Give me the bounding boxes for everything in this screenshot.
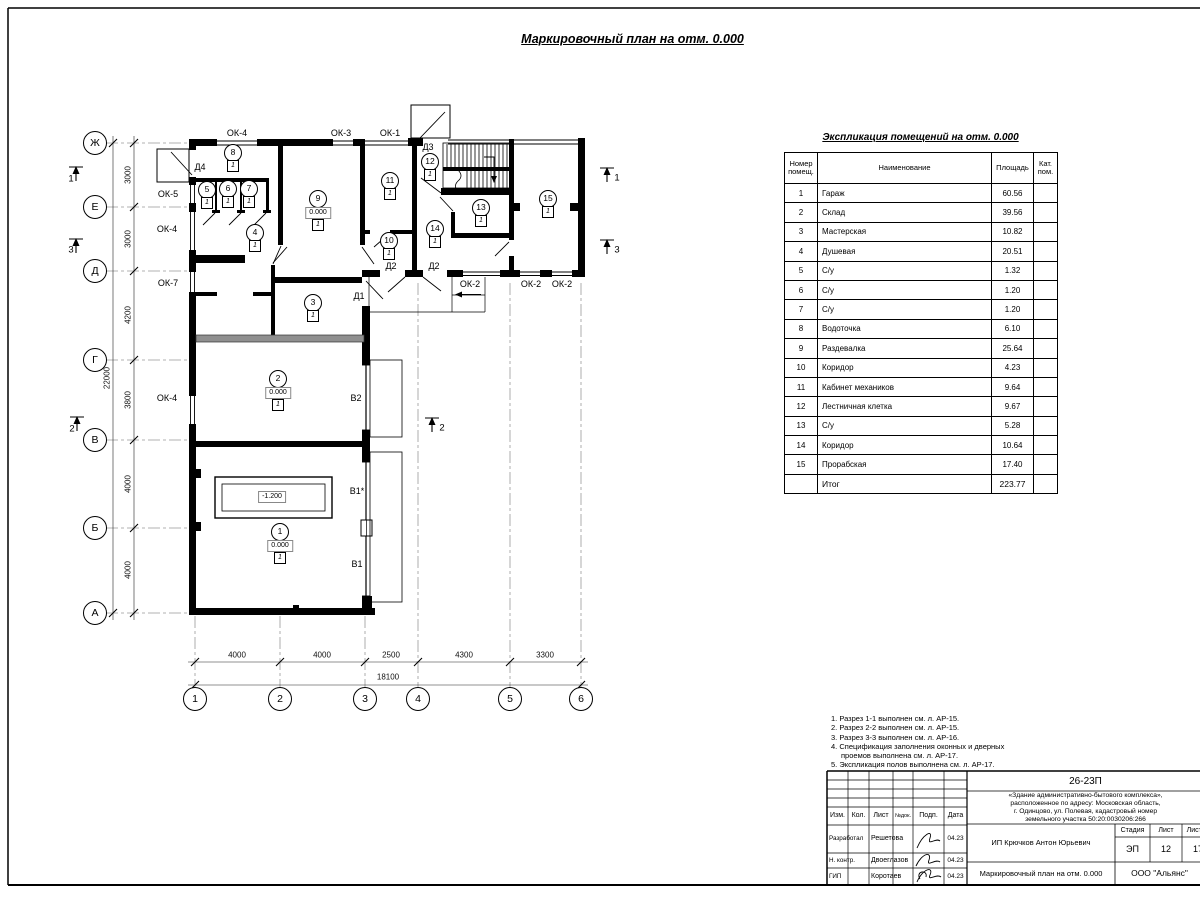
room-category: 1 <box>384 188 396 200</box>
opening-label-ОК-5: ОК-5 <box>158 189 178 199</box>
col-kol: Кол. <box>848 807 869 825</box>
cell-room-area: 10.64 <box>992 436 1034 455</box>
axis-circle-Б: Б <box>83 516 107 540</box>
cell-room-cat <box>1034 184 1058 203</box>
room-category: 1 <box>222 196 234 208</box>
cell-room-number: 3 <box>785 222 818 241</box>
company-name: ООО "Альянс" <box>1115 862 1200 885</box>
cell-room-name: Душевая <box>818 242 992 261</box>
cell-room-name: С/у <box>818 416 992 435</box>
table-row: 10Коридор4.23 <box>785 358 1058 377</box>
opening-label-Д2: Д2 <box>428 261 439 271</box>
stage-value: ЭП <box>1115 837 1150 862</box>
cell-room-number: 15 <box>785 455 818 474</box>
table-row: 8Водоточка6.10 <box>785 319 1058 338</box>
person-date: 04.23 <box>944 825 967 853</box>
cell-room-name: Мастерская <box>818 222 992 241</box>
cell-room-area: 39.56 <box>992 203 1034 222</box>
cell-room-cat <box>1034 203 1058 222</box>
room-category: 1 <box>227 160 239 172</box>
room-number-circle: 2 <box>269 370 287 388</box>
table-row: 15Прорабская17.40 <box>785 455 1058 474</box>
dim-label: 3800 <box>124 391 133 409</box>
note-line: 1. Разрез 1-1 выполнен см. л. АР-15. <box>831 714 1004 723</box>
cell-room-name: Гараж <box>818 184 992 203</box>
cell-empty <box>1034 474 1058 493</box>
room-category: 1 <box>475 215 487 227</box>
cell-room-cat <box>1034 339 1058 358</box>
person-name: Коротаев <box>871 868 912 885</box>
page-title: Маркировочный план на отм. 0.000 <box>460 32 805 46</box>
cell-room-number: 4 <box>785 242 818 261</box>
dim-label: 3300 <box>536 651 554 660</box>
sheets-value: 17 <box>1182 837 1200 862</box>
cell-room-cat <box>1034 300 1058 319</box>
axis-circle-Ж: Ж <box>83 131 107 155</box>
opening-label-ОК-2: ОК-2 <box>552 279 572 289</box>
section-number-2: 2 <box>69 424 74 435</box>
cell-room-number: 9 <box>785 339 818 358</box>
cell-room-cat <box>1034 261 1058 280</box>
col-ndok: №док. <box>893 807 913 825</box>
col-izm: Изм. <box>827 807 848 825</box>
opening-label-Д2: Д2 <box>385 261 396 271</box>
opening-label-ОК-4: ОК-4 <box>157 224 177 234</box>
cell-room-number: 14 <box>785 436 818 455</box>
pit-elevation: -1.200 <box>258 491 286 503</box>
room-category: 1 <box>249 240 261 252</box>
room-number-circle: 9 <box>309 190 327 208</box>
room-elevation: 0.000 <box>267 540 293 552</box>
dim-label: 4000 <box>124 561 133 579</box>
table-row: 13С/у5.28 <box>785 416 1058 435</box>
col-header-num: Номер помещ. <box>785 153 818 184</box>
notes-block: 1. Разрез 1-1 выполнен см. л. АР-15.2. Р… <box>831 714 1004 770</box>
cell-room-cat <box>1034 280 1058 299</box>
cell-room-name: Коридор <box>818 436 992 455</box>
table-row: 7С/у1.20 <box>785 300 1058 319</box>
col-data: Дата <box>944 807 967 825</box>
table-row: 14Коридор10.64 <box>785 436 1058 455</box>
dim-total-label: 22000 <box>103 367 112 389</box>
cell-room-cat <box>1034 416 1058 435</box>
cell-room-number: 10 <box>785 358 818 377</box>
room-category: 1 <box>272 399 284 411</box>
cell-room-area: 1.20 <box>992 300 1034 319</box>
dim-label: 4300 <box>455 651 473 660</box>
cell-room-name: С/у <box>818 280 992 299</box>
col-header-name: Наименование <box>818 153 992 184</box>
opening-label-Д3: Д3 <box>422 142 433 152</box>
opening-label-Д1: Д1 <box>353 291 364 301</box>
cell-room-area: 9.64 <box>992 377 1034 396</box>
section-number-1: 1 <box>614 173 619 184</box>
opening-label-ОК-1: ОК-1 <box>380 128 400 138</box>
cell-room-area: 6.10 <box>992 319 1034 338</box>
cell-room-number: 7 <box>785 300 818 319</box>
axis-circle-6: 6 <box>569 687 593 711</box>
opening-label-ОК-3: ОК-3 <box>331 128 351 138</box>
opening-label-ОК-4: ОК-4 <box>227 128 247 138</box>
cell-room-number: 13 <box>785 416 818 435</box>
col-podp: Подп. <box>913 807 944 825</box>
cell-room-area: 25.64 <box>992 339 1034 358</box>
sheets-label: Листов <box>1182 824 1200 837</box>
section-number-3: 3 <box>68 245 73 256</box>
table-row: 5С/у1.32 <box>785 261 1058 280</box>
cell-total-label: Итог <box>818 474 992 493</box>
opening-label-ОК-4: ОК-4 <box>157 393 177 403</box>
table-row: Итог223.77 <box>785 474 1058 493</box>
cell-room-area: 10.82 <box>992 222 1034 241</box>
axis-circle-1: 1 <box>183 687 207 711</box>
cell-room-cat <box>1034 319 1058 338</box>
cell-room-name: С/у <box>818 261 992 280</box>
room-category: 1 <box>201 197 213 209</box>
opening-label-ОК-2: ОК-2 <box>521 279 541 289</box>
cell-room-number: 11 <box>785 377 818 396</box>
axis-circle-4: 4 <box>406 687 430 711</box>
room-category: 1 <box>424 169 436 181</box>
axis-circle-В: В <box>83 428 107 452</box>
cell-room-name: Кабинет механиков <box>818 377 992 396</box>
col-header-cat: Кат. пом. <box>1034 153 1058 184</box>
cell-room-name: Прорабская <box>818 455 992 474</box>
table-row: 9Раздевалка25.64 <box>785 339 1058 358</box>
cell-room-name: Лестничная клетка <box>818 397 992 416</box>
col-list: Лист <box>869 807 893 825</box>
person-role: Разработал <box>829 825 867 853</box>
person-name: Двоеглазов <box>871 853 912 868</box>
person-role: Н. контр. <box>829 853 867 868</box>
note-line: 3. Разрез 3-3 выполнен см. л. АР-16. <box>831 733 1004 742</box>
dim-label: 2500 <box>382 651 400 660</box>
cell-room-name: С/у <box>818 300 992 319</box>
opening-label-В1*: В1* <box>350 486 365 496</box>
room-category: 1 <box>383 248 395 260</box>
cell-room-cat <box>1034 436 1058 455</box>
cell-room-number: 12 <box>785 397 818 416</box>
dim-label: 4000 <box>228 651 246 660</box>
section-number-1: 1 <box>68 174 73 185</box>
cell-room-area: 9.67 <box>992 397 1034 416</box>
drawing-name: Маркировочный план на отм. 0.000 <box>967 862 1115 885</box>
section-number-2: 2 <box>439 423 444 434</box>
table-header-row: Номер помещ. Наименование Площадь Кат. п… <box>785 153 1058 184</box>
col-header-area: Площадь <box>992 153 1034 184</box>
cell-room-number: 1 <box>785 184 818 203</box>
table-row: 3Мастерская10.82 <box>785 222 1058 241</box>
opening-label-В2: В2 <box>350 393 361 403</box>
room-category: 1 <box>243 196 255 208</box>
cell-room-cat <box>1034 358 1058 377</box>
room-number-circle: 1 <box>271 523 289 541</box>
opening-label-ОК-2: ОК-2 <box>460 279 480 289</box>
cell-empty <box>785 474 818 493</box>
cell-room-name: Коридор <box>818 358 992 377</box>
opening-label-ОК-7: ОК-7 <box>158 278 178 288</box>
axis-circle-3: 3 <box>353 687 377 711</box>
person-name: Решетова <box>871 825 912 853</box>
opening-label-В1: В1 <box>351 559 362 569</box>
explication-table: Номер помещ. Наименование Площадь Кат. п… <box>784 152 1058 494</box>
cell-room-area: 17.40 <box>992 455 1034 474</box>
person-date: 04.23 <box>944 868 967 885</box>
cell-room-cat <box>1034 222 1058 241</box>
cell-room-cat <box>1034 397 1058 416</box>
cell-room-area: 60.56 <box>992 184 1034 203</box>
table-row: 11Кабинет механиков9.64 <box>785 377 1058 396</box>
axis-circle-А: А <box>83 601 107 625</box>
cell-room-cat <box>1034 242 1058 261</box>
room-category: 1 <box>307 310 319 322</box>
dim-label: 4200 <box>124 306 133 324</box>
doc-code: 26-23П <box>967 773 1200 790</box>
table-row: 2Склад39.56 <box>785 203 1058 222</box>
person-date: 04.23 <box>944 853 967 868</box>
explication-title: Экспликация помещений на отм. 0.000 <box>784 132 1057 143</box>
room-elevation: 0.000 <box>265 387 291 399</box>
cell-room-name: Склад <box>818 203 992 222</box>
cell-room-number: 8 <box>785 319 818 338</box>
cell-room-area: 20.51 <box>992 242 1034 261</box>
dim-label: 4000 <box>124 475 133 493</box>
sheet-label: Лист <box>1150 824 1182 837</box>
opening-label-Д4: Д4 <box>194 162 205 172</box>
axis-circle-Д: Д <box>83 259 107 283</box>
room-category: 1 <box>274 552 286 564</box>
cell-total-value: 223.77 <box>992 474 1034 493</box>
stage-label: Стадия <box>1115 824 1150 837</box>
cell-room-area: 5.28 <box>992 416 1034 435</box>
room-category: 1 <box>429 236 441 248</box>
cell-room-name: Раздевалка <box>818 339 992 358</box>
note-line: проемов выполнена см. л. АР-17. <box>841 751 1004 760</box>
axis-circle-Е: Е <box>83 195 107 219</box>
cell-room-area: 1.32 <box>992 261 1034 280</box>
axis-circle-5: 5 <box>498 687 522 711</box>
person-role: ГИП <box>829 868 867 885</box>
cell-room-number: 5 <box>785 261 818 280</box>
note-line: 2. Разрез 2-2 выполнен см. л. АР-15. <box>831 723 1004 732</box>
cell-room-cat <box>1034 455 1058 474</box>
table-row: 6С/у1.20 <box>785 280 1058 299</box>
table-row: 4Душевая20.51 <box>785 242 1058 261</box>
cell-room-area: 1.20 <box>992 280 1034 299</box>
sheet-value: 12 <box>1150 837 1182 862</box>
table-row: 1Гараж60.56 <box>785 184 1058 203</box>
dim-total-label: 18100 <box>377 673 399 682</box>
note-line: 5. Экспликация полов выполнена см. л. АР… <box>831 760 1004 769</box>
section-number-3: 3 <box>614 245 619 256</box>
cell-room-number: 6 <box>785 280 818 299</box>
note-line: 4. Спецификация заполнения оконных и две… <box>831 742 1004 751</box>
room-elevation: 0.000 <box>305 207 331 219</box>
object-description: «Здание административно-бытового комплек… <box>969 792 1200 824</box>
table-row: 12Лестничная клетка9.67 <box>785 397 1058 416</box>
cell-room-cat <box>1034 377 1058 396</box>
room-category: 1 <box>312 219 324 231</box>
dim-label: 4000 <box>313 651 331 660</box>
room-category: 1 <box>542 206 554 218</box>
dim-label: 3000 <box>124 166 133 184</box>
cell-room-name: Водоточка <box>818 319 992 338</box>
annotation-layer: Маркировочный план на отм. 0.000 Эксплик… <box>0 0 1200 900</box>
cell-room-area: 4.23 <box>992 358 1034 377</box>
cell-room-number: 2 <box>785 203 818 222</box>
drawing-sheet: Маркировочный план на отм. 0.000 Эксплик… <box>0 0 1200 900</box>
client-name: ИП Крючков Антон Юрьевич <box>967 824 1115 862</box>
axis-circle-2: 2 <box>268 687 292 711</box>
dim-label: 3000 <box>124 230 133 248</box>
